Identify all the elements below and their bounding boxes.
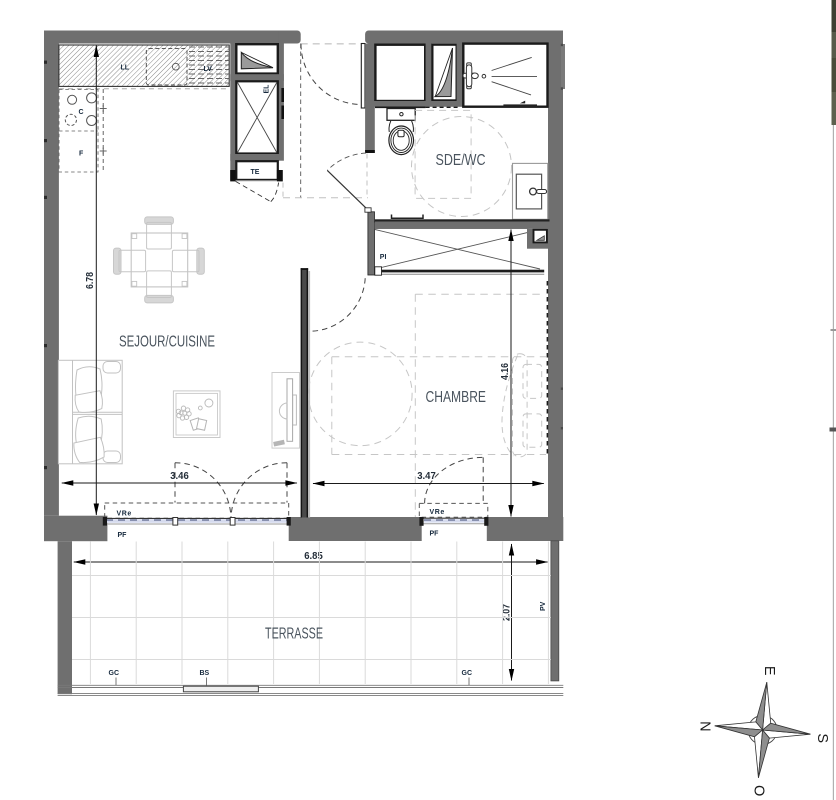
svg-text:TERRASSE: TERRASSE bbox=[265, 626, 323, 643]
svg-text:EL: EL bbox=[264, 84, 271, 94]
svg-text:6.85: 6.85 bbox=[304, 550, 323, 562]
svg-text:PF: PF bbox=[430, 531, 440, 538]
svg-text:O: O bbox=[751, 785, 767, 796]
svg-text:LL: LL bbox=[121, 65, 130, 72]
svg-text:3.46: 3.46 bbox=[170, 470, 189, 482]
svg-text:PI: PI bbox=[380, 254, 387, 261]
svg-text:F: F bbox=[79, 151, 84, 158]
svg-text:PV: PV bbox=[540, 601, 547, 611]
svg-text:TE: TE bbox=[251, 169, 260, 176]
svg-text:4.16: 4.16 bbox=[499, 363, 511, 380]
svg-text:SDE/WC: SDE/WC bbox=[436, 152, 486, 169]
svg-text:C: C bbox=[79, 109, 84, 116]
svg-text:PF: PF bbox=[118, 532, 128, 539]
svg-text:CHAMBRE: CHAMBRE bbox=[426, 389, 487, 406]
svg-text:GC: GC bbox=[109, 670, 120, 677]
svg-text:SEJOUR/CUISINE: SEJOUR/CUISINE bbox=[119, 334, 215, 351]
svg-text:BS: BS bbox=[200, 670, 210, 677]
svg-text:VRe: VRe bbox=[117, 511, 132, 518]
svg-text:GC: GC bbox=[462, 670, 473, 677]
svg-text:LV: LV bbox=[204, 66, 213, 73]
svg-text:N: N bbox=[697, 721, 713, 731]
svg-text:6.78: 6.78 bbox=[84, 272, 96, 289]
svg-text:VRe: VRe bbox=[430, 509, 445, 516]
svg-text:E: E bbox=[761, 666, 777, 676]
svg-text:S: S bbox=[814, 733, 830, 743]
svg-text:3.47: 3.47 bbox=[417, 470, 436, 482]
